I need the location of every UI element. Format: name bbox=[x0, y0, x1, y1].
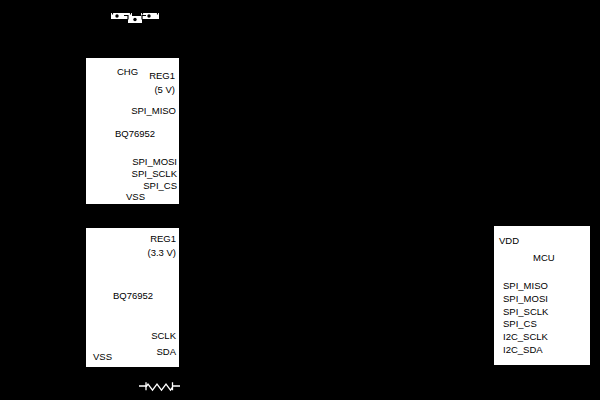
schematic-diagram: CHG REG1 (5 V) SPI_MISO BQ76952 SPI_MOSI… bbox=[0, 0, 600, 400]
pin-label-reg1-2: REG1 bbox=[147, 232, 176, 246]
bq76952-spi-block: CHG REG1 (5 V) SPI_MISO BQ76952 SPI_MOSI… bbox=[86, 58, 179, 204]
mcu-pin-spi-sclk: SPI_SCLK bbox=[503, 306, 548, 319]
part-name-bq76952-top: BQ76952 bbox=[115, 129, 155, 139]
pin-label-sclk: SCLK bbox=[151, 331, 176, 341]
mcu-pin-i2c-sclk: I2C_SCLK bbox=[503, 331, 548, 344]
pin-label-vss-bottom: VSS bbox=[93, 352, 112, 362]
pin-label-spi-sclk: SPI_SCLK bbox=[132, 168, 177, 180]
chg-dsg-fet-pair-icon bbox=[111, 12, 159, 23]
pin-label-vdd: VDD bbox=[499, 236, 519, 246]
spi-pin-group: SPI_MOSI SPI_SCLK SPI_CS bbox=[132, 156, 177, 192]
reg1-3v3-label: REG1 (3.3 V) bbox=[147, 232, 176, 259]
mcu-block: VDD MCU SPI_MISO SPI_MOSI SPI_SCLK SPI_C… bbox=[494, 226, 590, 365]
mcu-pin-spi-mosi: SPI_MOSI bbox=[503, 293, 548, 306]
pin-label-vss-top: VSS bbox=[126, 192, 145, 202]
mcu-pin-i2c-sda: I2C_SDA bbox=[503, 344, 548, 357]
mcu-pin-group: SPI_MISO SPI_MOSI SPI_SCLK SPI_CS I2C_SC… bbox=[503, 280, 548, 357]
sense-resistor-icon bbox=[139, 382, 180, 393]
reg1-5v-label: REG1 (5 V) bbox=[149, 69, 175, 96]
pin-label-spi-miso: SPI_MISO bbox=[131, 106, 176, 116]
pin-label-sda: SDA bbox=[156, 347, 176, 357]
pin-label-spi-mosi: SPI_MOSI bbox=[132, 156, 177, 168]
bq76952-i2c-block: REG1 (3.3 V) BQ76952 SCLK SDA VSS bbox=[86, 228, 179, 367]
part-name-bq76952-bottom: BQ76952 bbox=[113, 291, 153, 301]
pin-label-chg: CHG bbox=[117, 67, 138, 77]
part-name-mcu: MCU bbox=[533, 253, 555, 263]
reg1-voltage-label-2: (3.3 V) bbox=[147, 246, 176, 260]
mcu-pin-spi-cs: SPI_CS bbox=[503, 318, 548, 331]
reg1-voltage-label: (5 V) bbox=[149, 83, 175, 97]
pin-label-reg1: REG1 bbox=[149, 69, 175, 83]
mcu-pin-spi-miso: SPI_MISO bbox=[503, 280, 548, 293]
